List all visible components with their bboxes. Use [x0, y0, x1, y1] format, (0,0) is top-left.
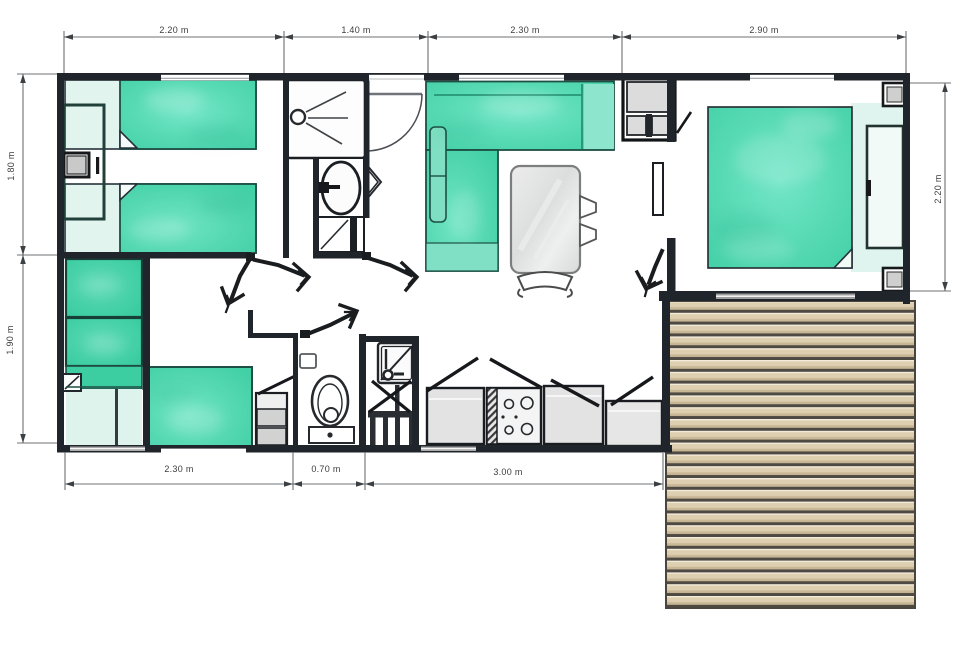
- svg-text:2.30 m: 2.30 m: [164, 464, 193, 474]
- svg-text:1.90 m: 1.90 m: [5, 325, 15, 354]
- svg-text:1.40 m: 1.40 m: [341, 25, 370, 35]
- svg-text:2.30 m: 2.30 m: [510, 25, 539, 35]
- svg-text:0.70 m: 0.70 m: [311, 464, 340, 474]
- svg-text:2.20 m: 2.20 m: [159, 25, 188, 35]
- svg-text:2.20 m: 2.20 m: [933, 174, 943, 203]
- svg-text:3.00 m: 3.00 m: [493, 467, 522, 477]
- svg-text:2.90 m: 2.90 m: [749, 25, 778, 35]
- svg-text:1.80 m: 1.80 m: [6, 151, 16, 180]
